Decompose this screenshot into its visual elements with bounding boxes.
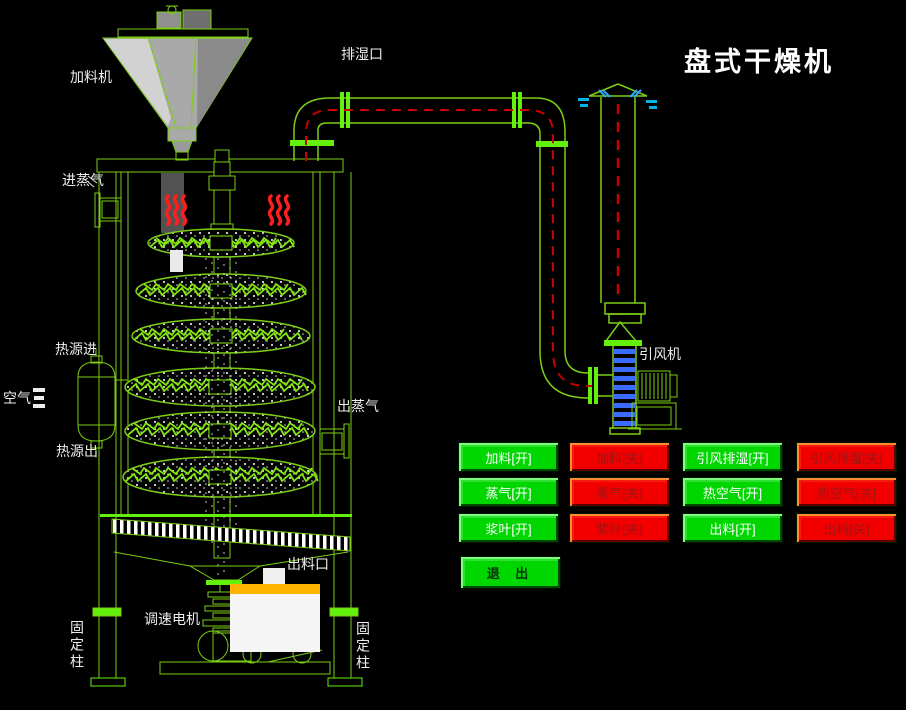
button-hot-air-on[interactable]: 热空气[开] bbox=[682, 477, 783, 507]
inspection-window bbox=[170, 250, 183, 272]
button-hot-air-off[interactable]: 热空气[关] bbox=[796, 477, 897, 507]
button-paddle-on[interactable]: 浆叶[开] bbox=[458, 513, 559, 543]
dryer-diagram bbox=[0, 0, 906, 710]
page-title: 盘式干燥机 bbox=[684, 40, 834, 79]
button-steam-off[interactable]: 蒸气[关] bbox=[569, 477, 670, 507]
button-exit[interactable]: 退 出 bbox=[460, 556, 561, 589]
label-air: 空气 bbox=[3, 391, 31, 405]
button-steam-on[interactable]: 蒸气[开] bbox=[458, 477, 559, 507]
label-steam-outlet: 出蒸气 bbox=[337, 399, 379, 413]
button-feed-off[interactable]: 加料[关] bbox=[569, 442, 670, 472]
feeder-hopper bbox=[103, 6, 252, 160]
label-fixed-column-left: 固定柱 bbox=[70, 620, 84, 671]
pipe-centerline bbox=[306, 110, 592, 386]
label-feeder: 加料机 bbox=[70, 70, 112, 84]
air-flow-marks bbox=[33, 388, 45, 408]
button-feed-on[interactable]: 加料[开] bbox=[458, 442, 559, 472]
label-discharge-port: 出料口 bbox=[287, 557, 329, 571]
hmi-screen: 盘式干燥机 加料机 排湿口 进蒸气 热源进 空气 热源出 出蒸气 出料口 调速电… bbox=[0, 0, 906, 710]
button-paddle-off[interactable]: 浆叶[关] bbox=[569, 513, 670, 543]
button-draft-dehumidify-on[interactable]: 引风排湿[开] bbox=[682, 442, 783, 472]
exhaust-pipe bbox=[290, 92, 613, 404]
label-fixed-column-right: 固定柱 bbox=[356, 621, 370, 672]
label-draft-fan: 引风机 bbox=[639, 347, 681, 361]
collection-cart bbox=[230, 568, 320, 663]
label-heat-source-out: 热源出 bbox=[56, 444, 98, 458]
button-discharge-on[interactable]: 出料[开] bbox=[682, 513, 783, 543]
button-draft-dehumidify-off[interactable]: 引风排湿[关] bbox=[796, 442, 897, 472]
label-steam-inlet: 进蒸气 bbox=[62, 173, 104, 187]
label-speed-motor: 调速电机 bbox=[144, 612, 200, 626]
label-moisture-outlet: 排湿口 bbox=[341, 47, 383, 61]
button-discharge-off[interactable]: 出料[关] bbox=[796, 513, 897, 543]
label-heat-source-in: 热源进 bbox=[55, 342, 97, 356]
